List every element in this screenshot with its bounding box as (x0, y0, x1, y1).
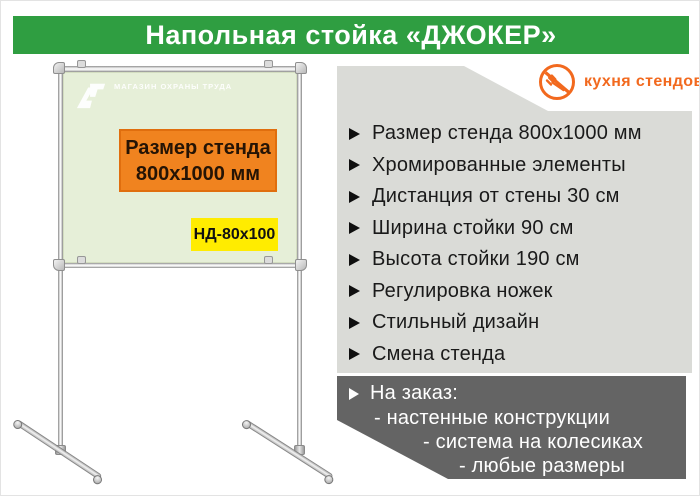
size-label-line2: 800x1000 мм (121, 161, 275, 187)
custom-order-title-line: На заказ: (349, 382, 458, 405)
feature-item: Регулировка ножек (337, 276, 692, 308)
features-list: Размер стенда 800х1000 мм Хромированные … (337, 118, 692, 370)
feature-item: Дистанция от стены 30 см (337, 181, 692, 213)
bullet-triangle-icon (349, 222, 360, 234)
feature-item: Смена стенда (337, 339, 692, 371)
feature-item: Размер стенда 800х1000 мм (337, 118, 692, 150)
bullet-triangle-icon (349, 285, 360, 297)
feature-item: Стильный дизайн (337, 307, 692, 339)
model-label: НД-80x100 (191, 218, 278, 251)
frame-clamp (264, 60, 273, 68)
custom-order-option: - система на колесиках (423, 431, 643, 454)
no-fork-icon (537, 62, 577, 102)
frame-clamp (264, 256, 273, 264)
feature-item: Ширина стойки 90 см (337, 213, 692, 245)
custom-order-option: - любые размеры (459, 455, 625, 478)
watermark-logo-icon (75, 79, 107, 111)
feature-item: Хромированные элементы (337, 150, 692, 182)
page-title-bar: Напольная стойка «ДЖОКЕР» (13, 16, 689, 54)
brand-name: кухня стендов (584, 73, 700, 91)
promo-banner: Напольная стойка «ДЖОКЕР» кухня стендов … (0, 0, 700, 496)
bullet-triangle-icon (349, 128, 360, 140)
frame-corner-bottom-left (53, 259, 65, 271)
custom-order-option: - настенные конструкции (374, 407, 610, 430)
features-panel: Размер стенда 800х1000 мм Хромированные … (337, 66, 692, 373)
custom-order-box: На заказ: - настенные конструкции - сист… (337, 376, 686, 479)
page-title: Напольная стойка «ДЖОКЕР» (145, 20, 556, 50)
size-label: Размер стенда 800x1000 мм (119, 129, 277, 192)
size-label-line1: Размер стенда (121, 135, 275, 161)
frame-clamp (77, 60, 86, 68)
bullet-triangle-icon (349, 317, 360, 329)
brand-logo: кухня стендов (537, 61, 693, 103)
frame-corner-top-right (295, 62, 307, 74)
model-label-text: НД-80x100 (194, 226, 276, 243)
custom-order-title: На заказ: (370, 382, 458, 405)
bullet-triangle-icon (349, 191, 360, 203)
bullet-triangle-icon (349, 159, 360, 171)
bullet-triangle-icon (349, 388, 359, 400)
frame-corner-top-left (53, 62, 65, 74)
right-foot (244, 420, 333, 480)
bullet-triangle-icon (349, 254, 360, 266)
watermark-text: МАГАЗИН ОХРАНЫ ТРУДА (114, 82, 232, 91)
board-watermark: МАГАЗИН ОХРАНЫ ТРУДА (75, 79, 232, 111)
bullet-triangle-icon (349, 348, 360, 360)
feature-item: Высота стойки 190 см (337, 244, 692, 276)
frame-clamp (77, 256, 86, 264)
frame-corner-bottom-right (295, 259, 307, 271)
